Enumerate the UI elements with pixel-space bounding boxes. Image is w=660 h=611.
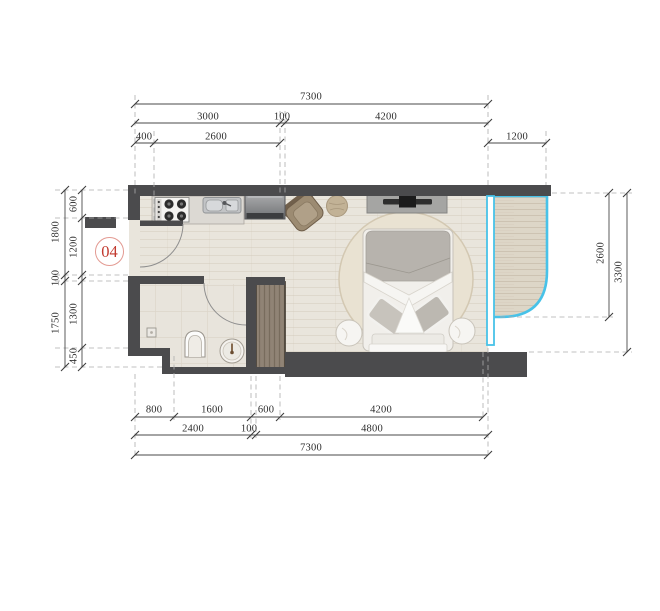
refrigerator-icon [245, 195, 285, 220]
unit-number-badge: 04 [95, 237, 124, 266]
dim-top-total: 7300 [300, 92, 322, 103]
bottom-thick-wall [285, 352, 527, 377]
dim-left-100: 100 [51, 270, 62, 286]
dim-bottom-600: 600 [258, 405, 274, 416]
left-wall-upper [128, 196, 140, 220]
sink-icon [203, 198, 241, 214]
corridor-wall-stub [85, 217, 116, 228]
dim-bottom-4800: 4800 [361, 424, 383, 435]
dim-left-1200: 1200 [69, 236, 80, 258]
dim-balcony-1200: 1200 [506, 132, 528, 143]
bathroom-bottom-wall [162, 367, 285, 374]
dim-bottom-100: 100 [241, 424, 257, 435]
toilet-icon [185, 331, 205, 357]
dim-top-400: 400 [136, 132, 152, 143]
bathroom-top-wall [128, 276, 204, 284]
top-wall [128, 185, 551, 196]
dim-top-2600: 2600 [205, 132, 227, 143]
dim-left-600: 600 [69, 196, 80, 212]
dim-left-450: 450 [69, 348, 80, 364]
dim-bottom-4200: 4200 [370, 405, 392, 416]
entry-threshold-floor [129, 218, 140, 276]
dim-bottom-2400: 2400 [182, 424, 204, 435]
dim-right-2600: 2600 [596, 242, 607, 264]
balcony-floor-and-curved-glass-wall [493, 196, 547, 317]
bathroom-right-wall [246, 277, 256, 374]
dim-top-100: 100 [274, 112, 290, 123]
floor-plan-canvas: 7300 3000 100 4200 400 2600 1200 1800 10… [0, 0, 660, 611]
wardrobe-icon [256, 282, 285, 368]
tv-console-icon [367, 195, 447, 213]
dim-left-1300: 1300 [69, 303, 80, 325]
dim-left-1750: 1750 [51, 312, 62, 334]
dim-right-3300: 3300 [614, 261, 625, 283]
washbasin-icon [220, 339, 244, 363]
entry-door-leaf [140, 221, 183, 227]
dim-bottom-800: 800 [146, 405, 162, 416]
dim-bottom-total: 7300 [300, 443, 322, 454]
dim-top-3000: 3000 [197, 112, 219, 123]
dim-left-1800: 1800 [51, 221, 62, 243]
left-wall-lower [128, 276, 140, 354]
dim-top-4200: 4200 [375, 112, 397, 123]
outside-notch [128, 356, 162, 374]
nightstand-left-icon [336, 320, 362, 346]
bed-icon [363, 229, 453, 352]
floor-plan-drawing [0, 0, 660, 611]
nightstand-right-icon [449, 318, 475, 344]
dim-bottom-1600: 1600 [201, 405, 223, 416]
pouf-icon [327, 196, 348, 217]
stove-icon [155, 198, 189, 223]
glass-partition [487, 196, 494, 345]
